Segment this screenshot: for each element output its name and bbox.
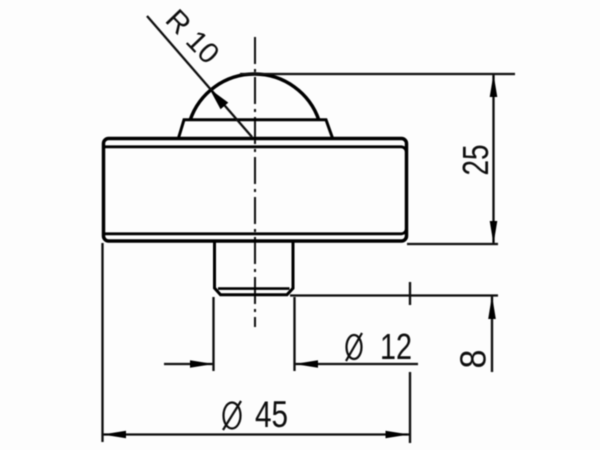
svg-text:45: 45 [255,394,288,435]
svg-text:R 10: R 10 [159,4,225,71]
svg-text:8: 8 [453,350,494,369]
svg-text:25: 25 [455,145,496,176]
svg-text:12: 12 [380,326,412,367]
